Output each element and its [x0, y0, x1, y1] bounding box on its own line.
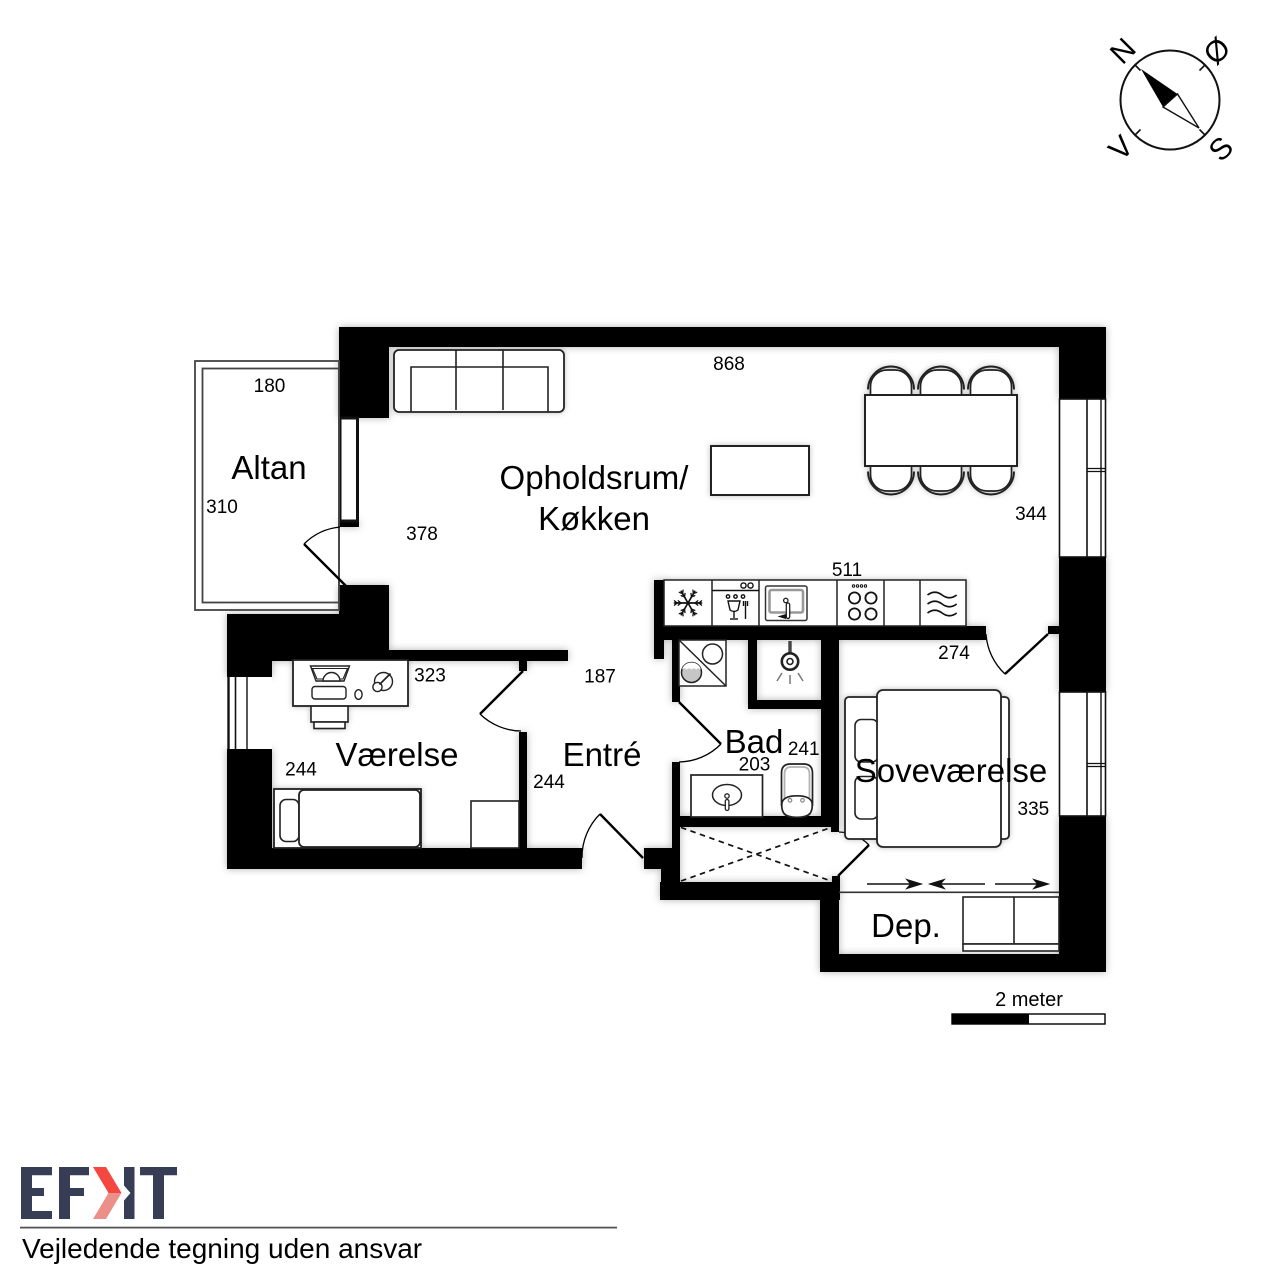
svg-text:323: 323 [414, 666, 446, 687]
svg-text:344: 344 [1015, 504, 1047, 525]
svg-text:Soveværelse: Soveværelse [855, 752, 1048, 789]
svg-text:Værelse: Værelse [336, 736, 459, 773]
svg-text:244: 244 [285, 760, 317, 781]
svg-text:511: 511 [832, 560, 862, 581]
svg-text:868: 868 [713, 354, 745, 375]
svg-text:241: 241 [788, 739, 820, 760]
svg-text:Entré: Entré [563, 736, 642, 773]
svg-text:310: 310 [206, 497, 238, 518]
svg-text:Køkken: Køkken [538, 500, 650, 537]
svg-text:203: 203 [739, 755, 771, 776]
svg-text:Dep.: Dep. [871, 907, 941, 944]
svg-text:Altan: Altan [231, 449, 306, 486]
svg-text:187: 187 [584, 667, 616, 688]
svg-text:378: 378 [406, 524, 438, 545]
svg-text:2 meter: 2 meter [995, 989, 1063, 1011]
svg-text:Vejledende tegning uden ansvar: Vejledende tegning uden ansvar [22, 1233, 422, 1264]
svg-text:180: 180 [254, 376, 286, 397]
svg-text:335: 335 [1018, 799, 1050, 820]
svg-text:Opholdsrum/: Opholdsrum/ [500, 459, 690, 496]
svg-text:274: 274 [938, 643, 970, 664]
svg-text:244: 244 [533, 772, 565, 793]
